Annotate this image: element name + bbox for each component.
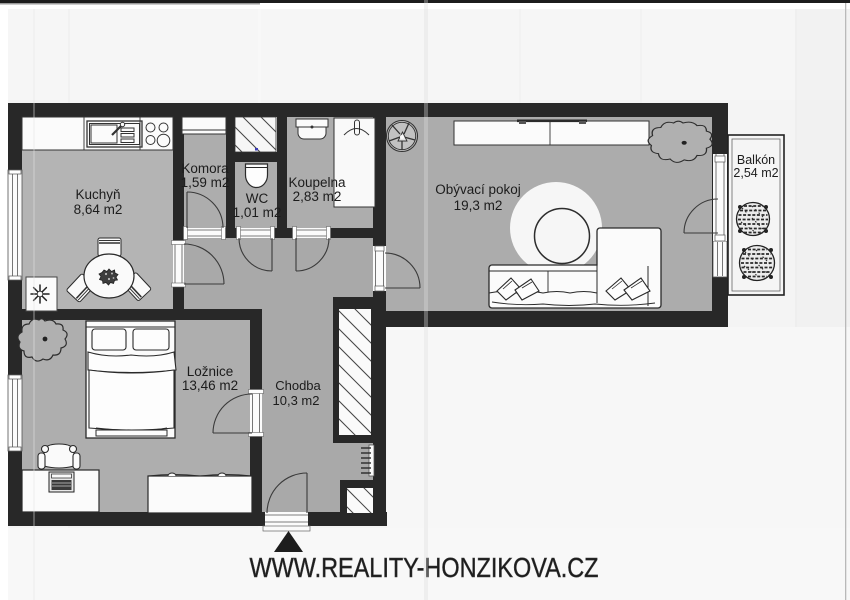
svg-text:Komora: Komora <box>181 161 229 176</box>
svg-text:Ložnice: Ložnice <box>187 364 234 379</box>
svg-text:1,59 m2: 1,59 m2 <box>181 175 230 190</box>
svg-text:Obývací pokoj: Obývací pokoj <box>435 182 521 197</box>
svg-text:19,3 m2: 19,3 m2 <box>454 198 503 213</box>
svg-text:Chodba: Chodba <box>275 378 321 393</box>
svg-text:13,46 m2: 13,46 m2 <box>182 378 238 393</box>
svg-text:WC: WC <box>246 191 269 206</box>
svg-text:Balkón: Balkón <box>737 153 775 167</box>
svg-text:2,54 m2: 2,54 m2 <box>733 166 778 180</box>
svg-text:10,3 m2: 10,3 m2 <box>273 393 320 408</box>
svg-text:Koupelna: Koupelna <box>288 175 346 190</box>
svg-text:2,83 m2: 2,83 m2 <box>293 189 342 204</box>
svg-text:Kuchyň: Kuchyň <box>75 187 120 202</box>
svg-text:8,64 m2: 8,64 m2 <box>74 202 123 217</box>
svg-text:1,01 m2: 1,01 m2 <box>233 205 282 220</box>
